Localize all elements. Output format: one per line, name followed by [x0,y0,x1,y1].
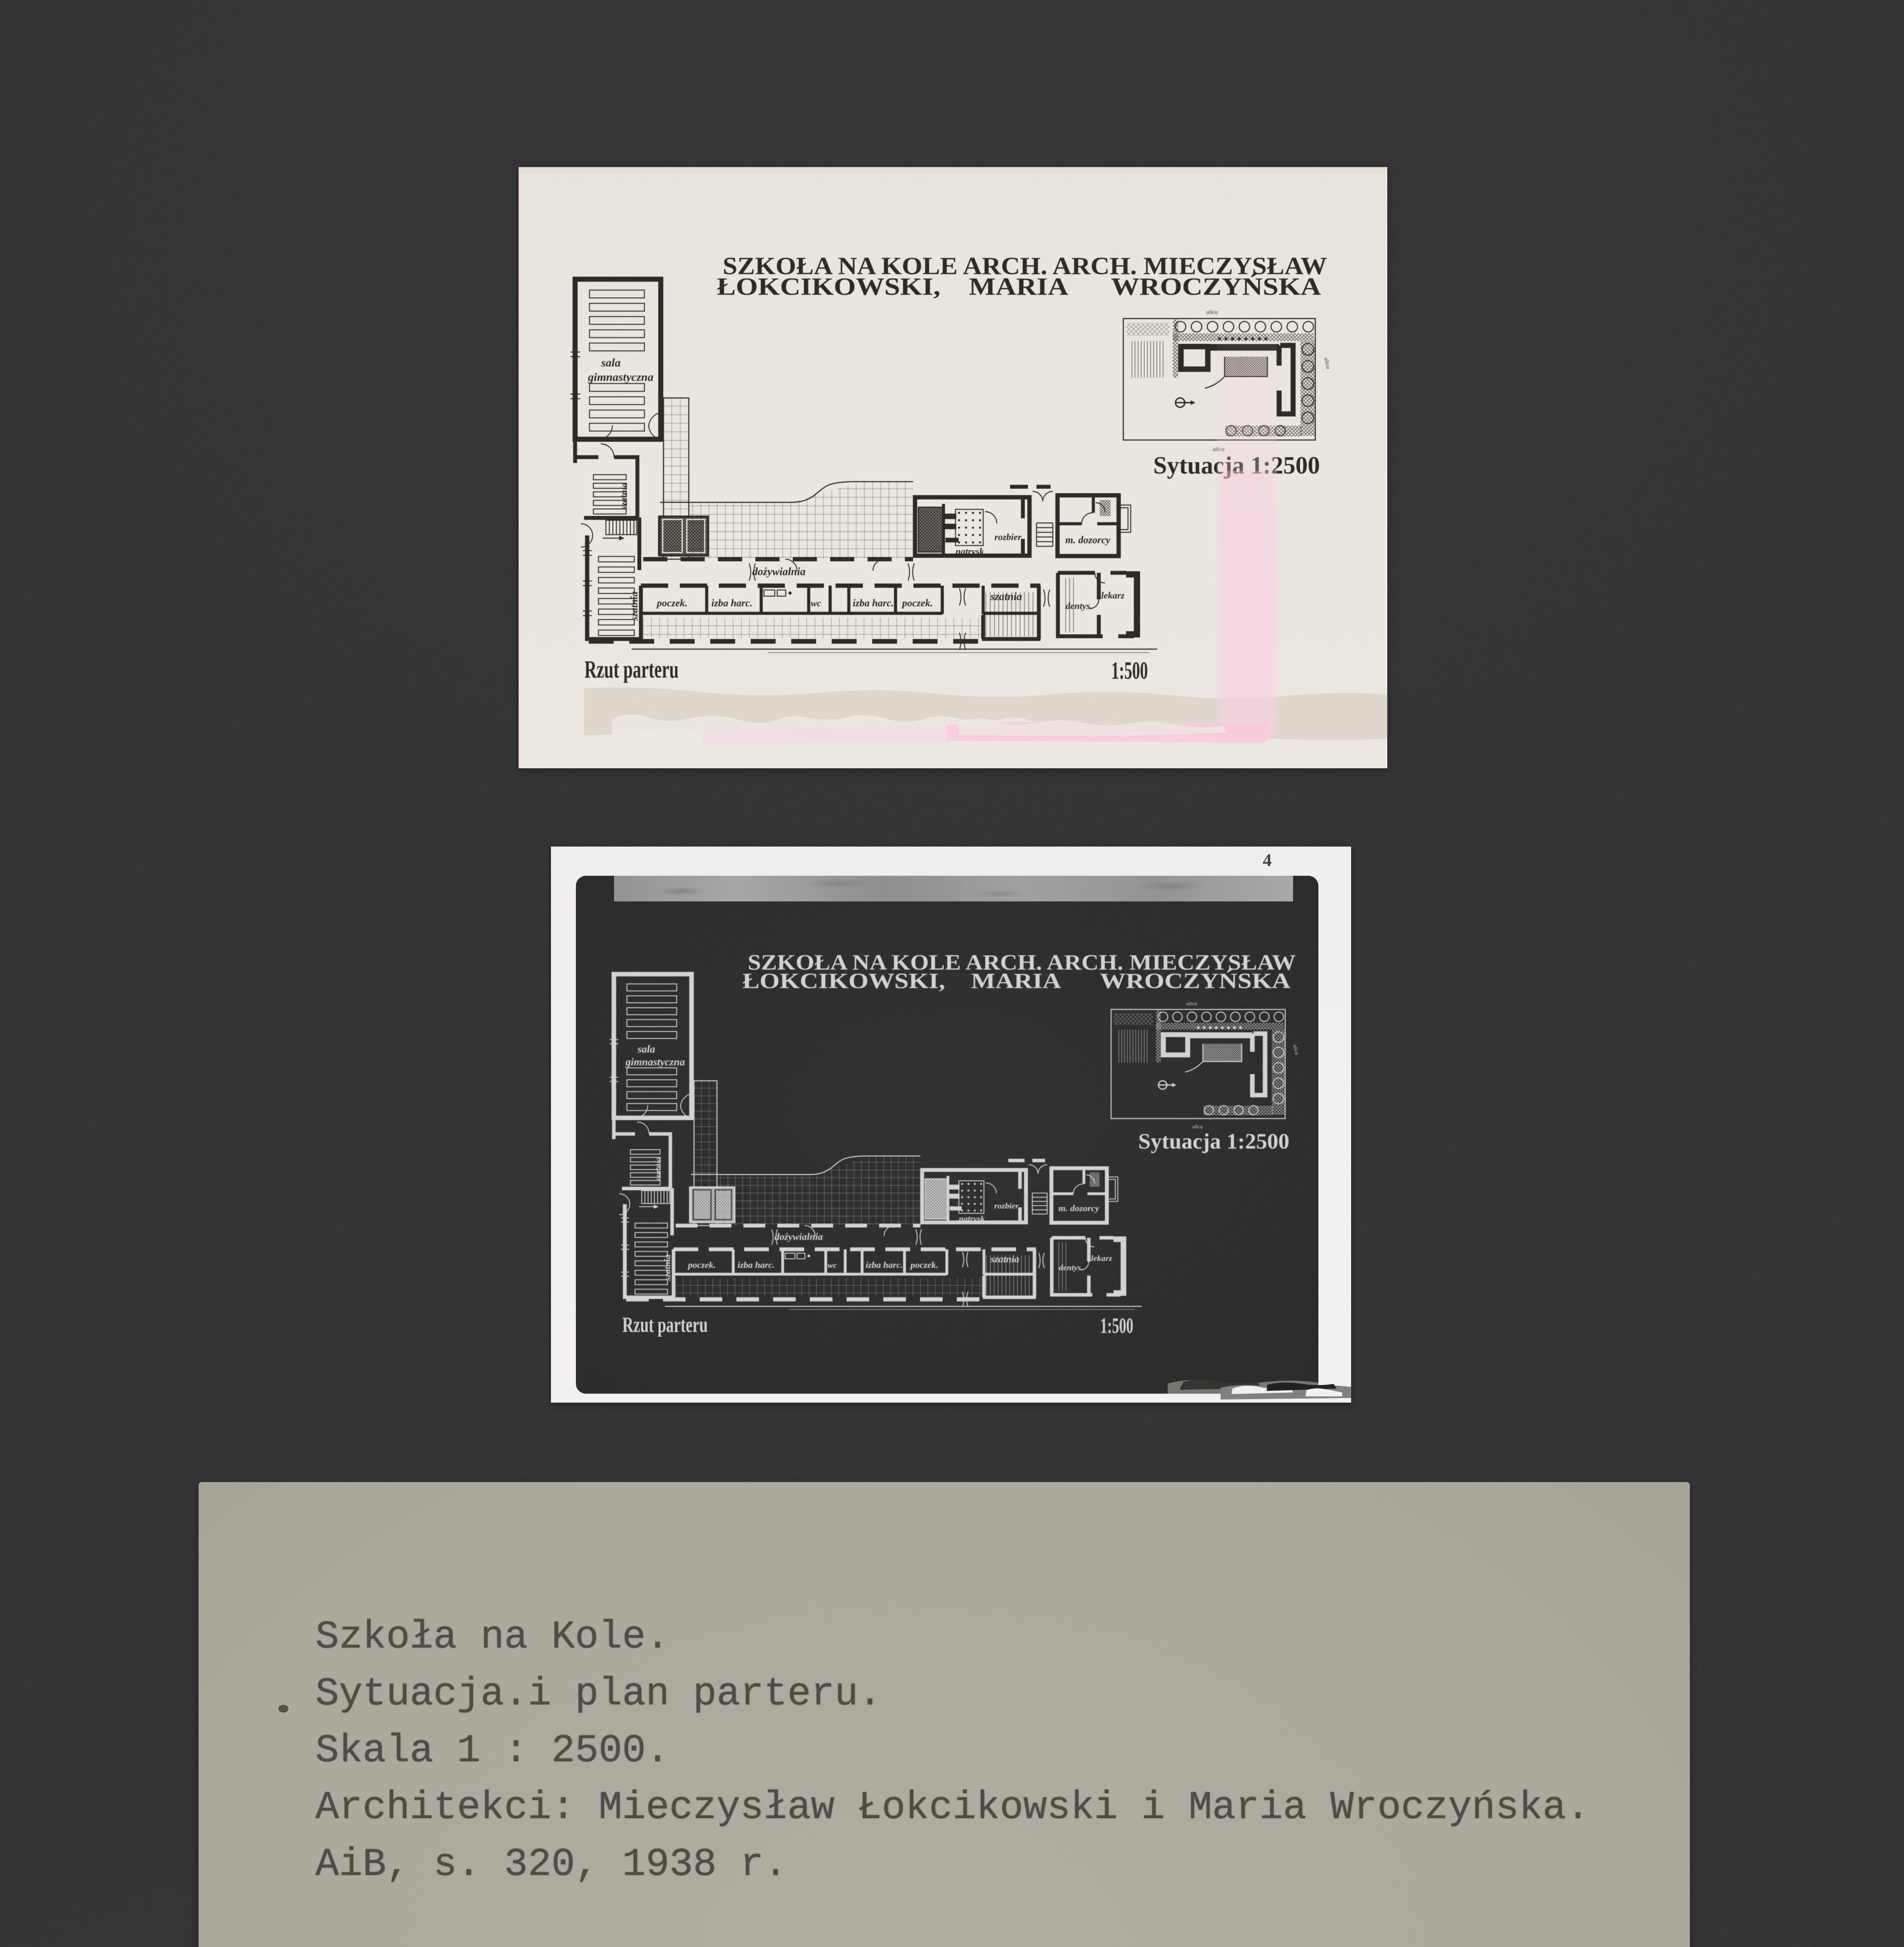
svg-text:lekarz: lekarz [1091,1253,1112,1263]
svg-text:sala: sala [637,1043,655,1055]
svg-text:ŁOKCIKOWSKI, MARIA WROCZYŃSKA: ŁOKCIKOWSKI, MARIA WROCZYŃSKA [743,969,1291,993]
svg-text:Sytuacja 1:2500: Sytuacja 1:2500 [1138,1129,1289,1154]
svg-text:izba harc.: izba harc. [866,1260,903,1270]
svg-text:poczek.: poczek. [910,1260,938,1270]
svg-text:szatnia: szatnia [653,1157,663,1181]
svg-text:m. dozorcy: m. dozorcy [1058,1204,1099,1214]
svg-text:Rzut parteru: Rzut parteru [622,1313,707,1337]
svg-text:gimnastyczna: gimnastyczna [625,1056,685,1068]
svg-text:ulica: ulica [1192,1124,1203,1130]
svg-text:wc: wc [827,1260,837,1270]
svg-text:1:500: 1:500 [1100,1313,1133,1338]
svg-text:izba harc.: izba harc. [737,1260,775,1270]
svg-text:dożywialnia: dożywialnia [774,1231,823,1242]
svg-text:natrysk: natrysk [959,1214,985,1223]
svg-text:szatnia: szatnia [663,1254,673,1281]
svg-text:ulica: ulica [1292,1044,1300,1056]
svg-text:szatnia: szatnia [990,1254,1019,1265]
svg-text:rozbier.: rozbier. [994,1201,1020,1210]
svg-text:poczek.: poczek. [687,1260,716,1270]
svg-text:ulica: ulica [1186,1001,1197,1007]
